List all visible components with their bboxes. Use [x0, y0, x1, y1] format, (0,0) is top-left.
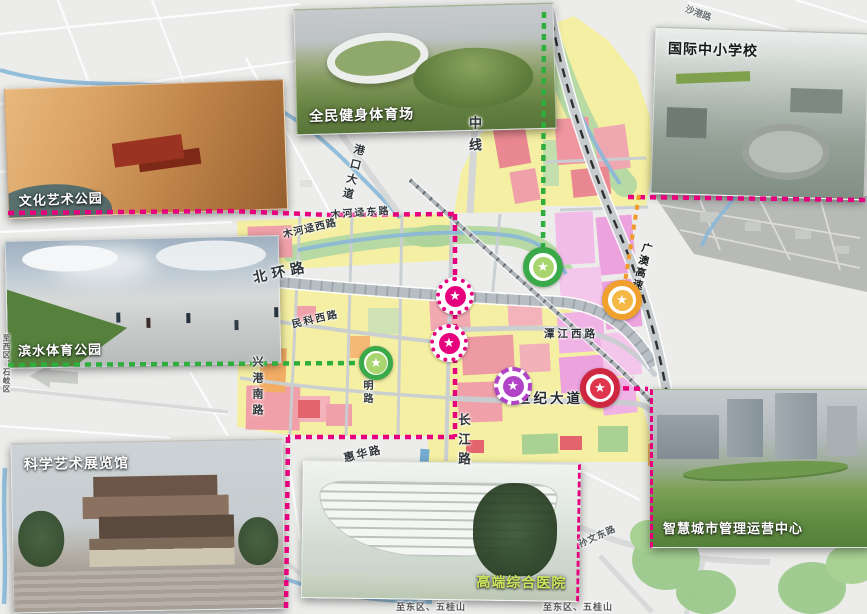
inset-smart-city-center: 智慧城市管理运营中心 [650, 389, 867, 548]
direction-label-east-1: 至东区、五桂山 [396, 600, 466, 613]
museum-tier-4 [89, 536, 235, 567]
inset-hospital: 高端综合医院 [301, 460, 581, 602]
star-icon: ★ [366, 353, 387, 374]
star-icon: ★ [590, 378, 611, 399]
inset-school: 国际中小学校 [650, 27, 867, 201]
inset-label-smart-city-center: 智慧城市管理运营中心 [663, 518, 803, 537]
facility-star-green-2: ★ [523, 247, 563, 287]
office-tower-2 [775, 393, 817, 459]
inset-label-stadium: 全民健身体育场 [309, 103, 414, 126]
school-building-1 [666, 107, 707, 138]
office-slab [657, 415, 719, 459]
stadium-green-hill [413, 46, 535, 109]
direction-label-east-2: 至东区、五桂山 [543, 600, 613, 613]
office-tower-1 [727, 399, 763, 457]
star-icon: ★ [445, 286, 466, 307]
facility-star-red: ★ [580, 368, 620, 408]
inset-label-school: 国际中小学校 [668, 38, 759, 61]
direction-label-west: 至西区、石岐区 [1, 334, 12, 394]
tree [472, 482, 557, 579]
road-label-ming: 明路 [359, 380, 374, 406]
school-plaza [741, 123, 831, 182]
inset-label-hospital: 高端综合医院 [476, 571, 566, 592]
inset-label-culture-park: 文化艺术公园 [18, 188, 103, 210]
green-roof-arc [683, 458, 849, 483]
facility-star-orange: ★ [602, 280, 642, 320]
culture-park-building [111, 134, 184, 168]
school-building-2 [790, 88, 843, 114]
facility-star-purple: ★ [494, 367, 532, 405]
tree [18, 511, 65, 568]
road-label-changjiang: 长江路 [454, 413, 473, 472]
inset-culture-park: 文化艺术公园 [4, 79, 288, 219]
skatepark-people [116, 313, 120, 323]
star-icon: ★ [503, 376, 524, 397]
office-tower-3 [827, 406, 857, 456]
facility-star-magenta-2: ★ [430, 324, 468, 362]
inset-label-science-museum: 科学艺术展览馆 [24, 452, 129, 474]
cloud [22, 245, 119, 273]
road-label-zhongxian: 中线 [464, 116, 483, 160]
road-label-xinggang-south: 兴港南路 [249, 356, 265, 420]
inset-waterfront-park: 滨水体育公园 [5, 235, 282, 369]
masterplan-map: 文化艺术公园 全民健身体育场 国际中小学校 滨水体育公园 科学艺术展览馆 高端综… [0, 0, 867, 614]
museum-steps [14, 567, 285, 612]
road-label-tanjiang-west: 潭江西路 [544, 326, 598, 341]
star-icon: ★ [533, 257, 554, 278]
tree [237, 517, 278, 566]
inset-label-waterfront-park: 滨水体育公园 [18, 339, 102, 360]
inset-science-museum: 科学艺术展览馆 [11, 439, 286, 614]
school-green-roof [676, 71, 750, 84]
facility-star-magenta-1: ★ [436, 277, 474, 315]
star-icon: ★ [439, 333, 460, 354]
facility-star-green-1: ★ [359, 346, 393, 380]
star-icon: ★ [612, 290, 633, 311]
inset-stadium: 全民健身体育场 [293, 3, 556, 136]
cloud [155, 239, 266, 271]
